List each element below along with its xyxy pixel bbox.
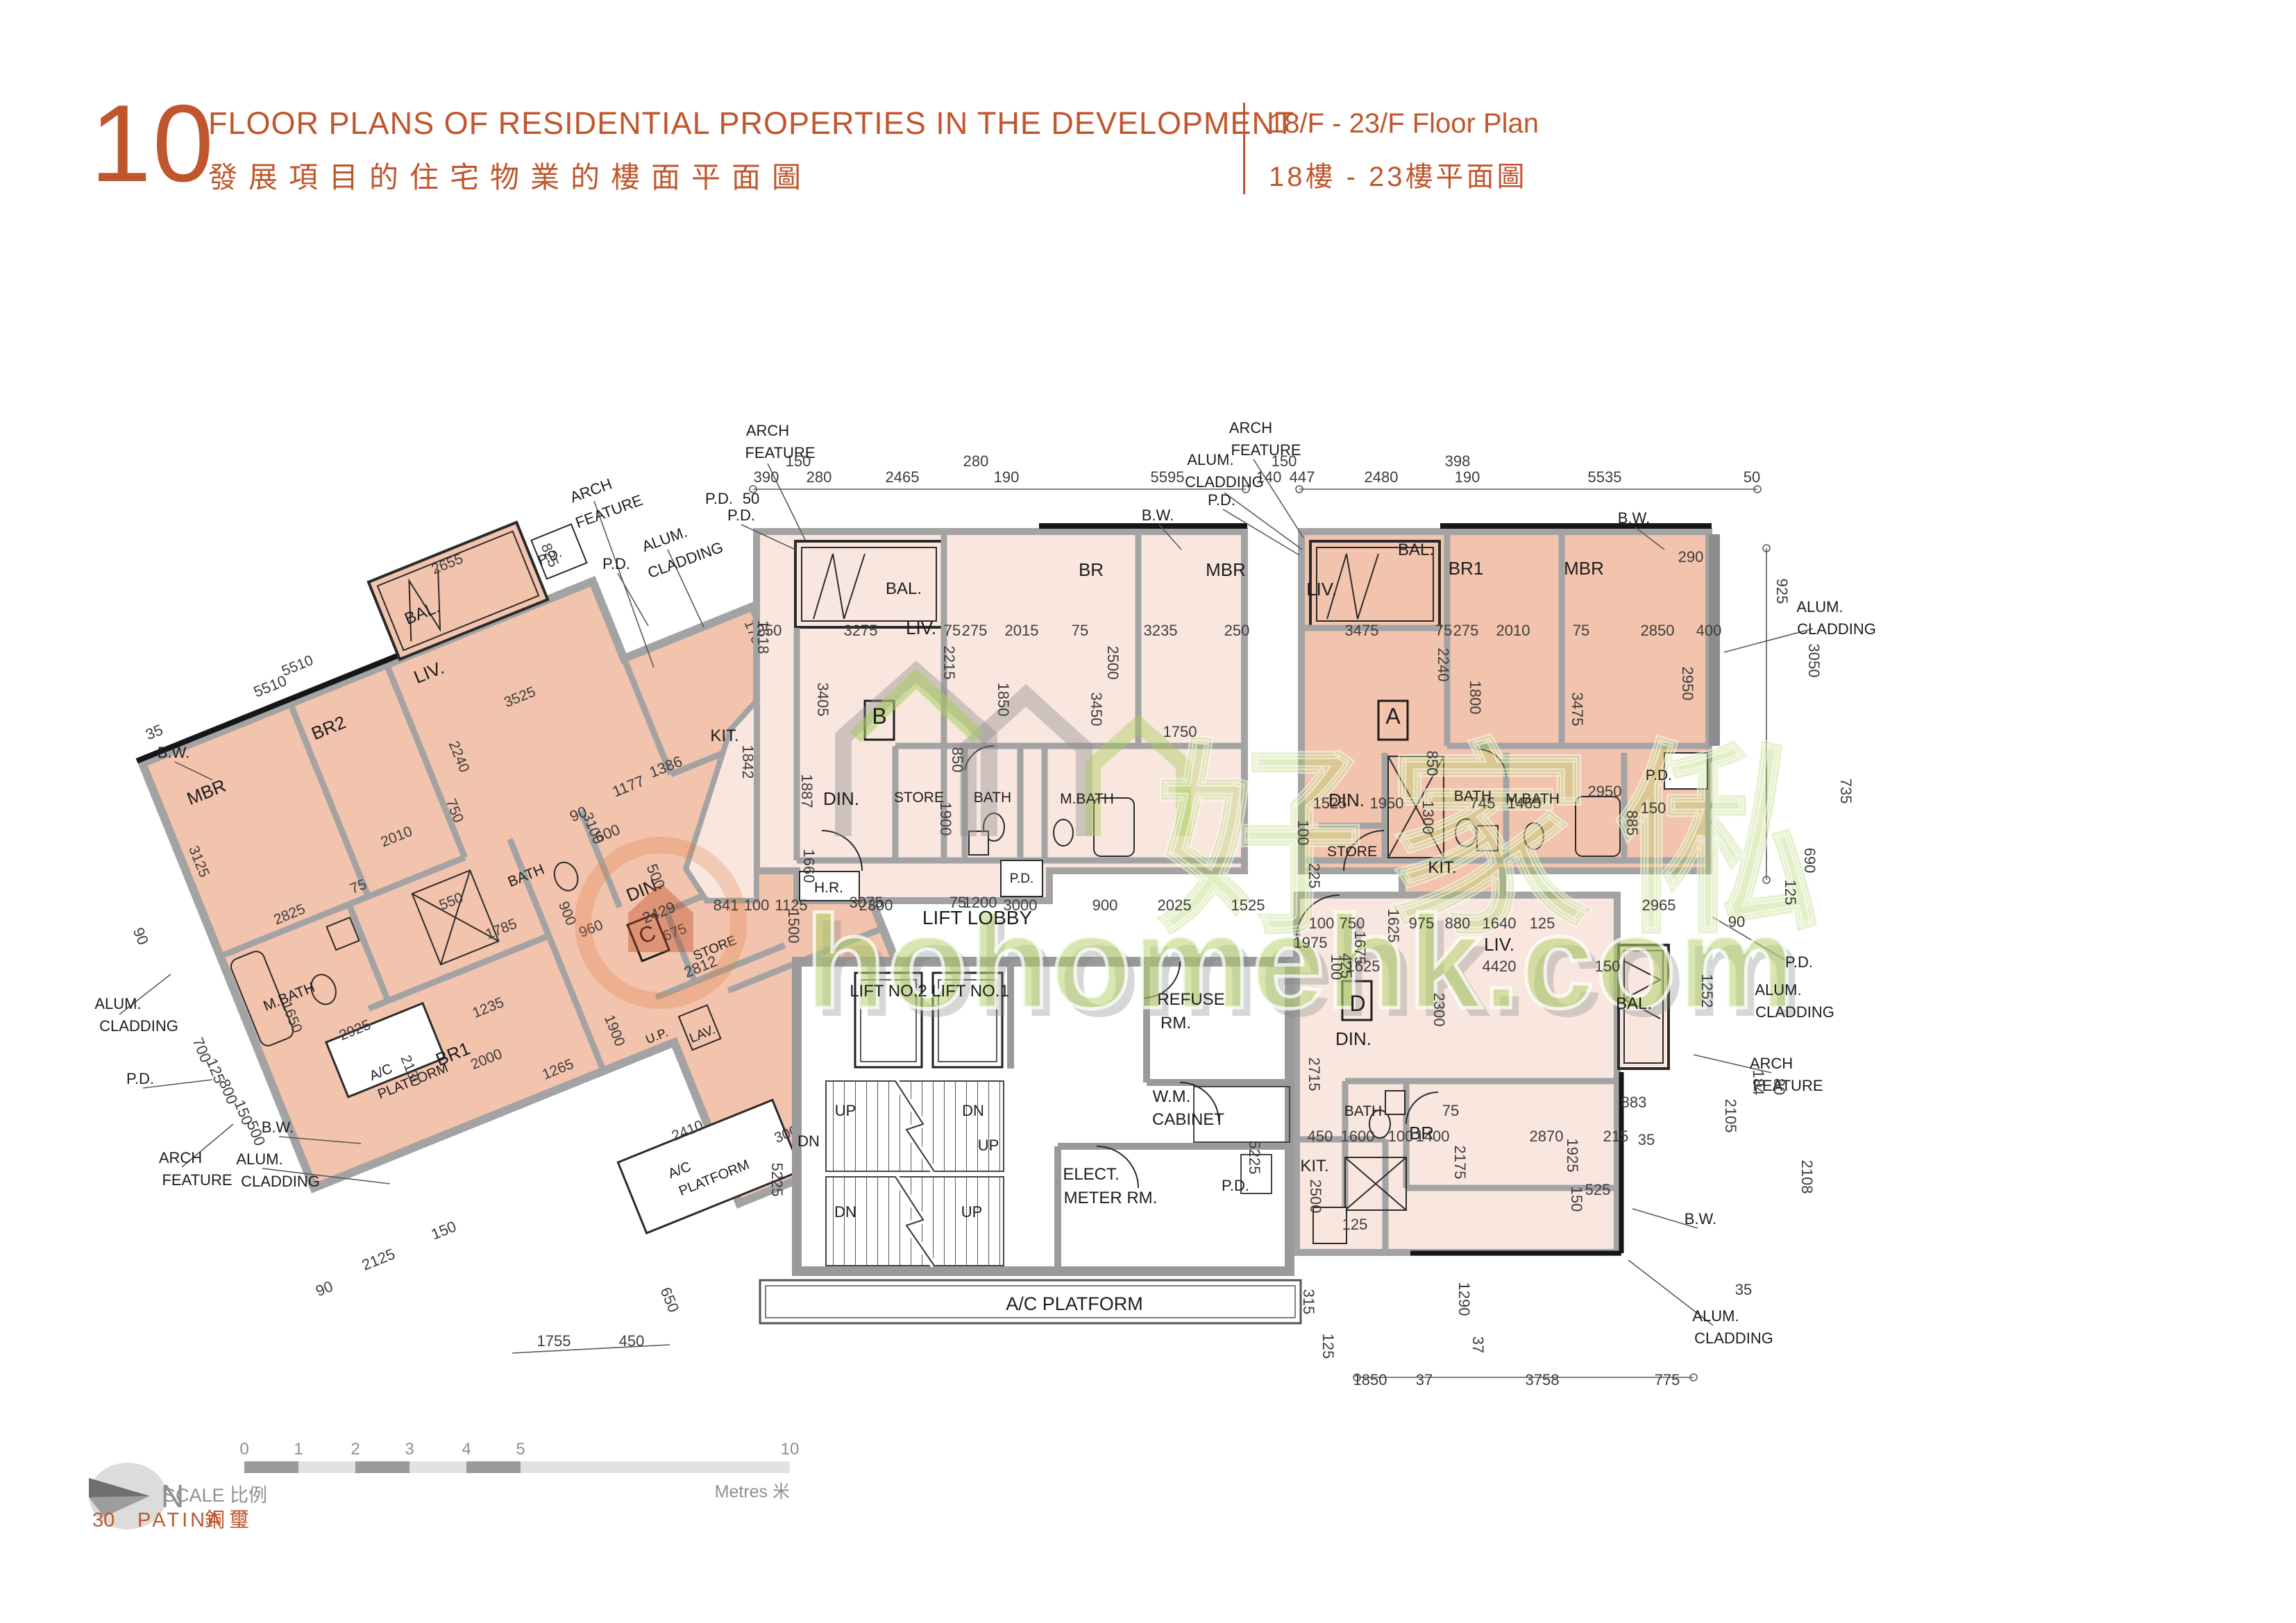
callout-label: B.W. xyxy=(1685,1210,1716,1227)
callout-label: B.W. xyxy=(1142,507,1174,524)
room-label: LIFT NO.1 xyxy=(931,982,1009,1001)
footer-block: N SCALE 比例 01234510 Metres 米 30 PATINA 銅… xyxy=(89,1440,799,1531)
room-label: KIT. xyxy=(1300,1157,1328,1175)
dimension-label: 5225 xyxy=(1246,1141,1263,1175)
dimension-label: 1925 xyxy=(1564,1139,1581,1173)
dimension-label: 2950 xyxy=(1679,667,1696,701)
callout-label: B.W. xyxy=(158,744,189,761)
scale-tick-label: 1 xyxy=(294,1440,303,1459)
dimension-label: 315 xyxy=(1300,1289,1317,1315)
dimension-label: 1200 xyxy=(963,894,997,911)
dimension-label: 3000 xyxy=(1004,897,1038,914)
callout-label: B.W. xyxy=(1618,509,1650,527)
scale-tick-label: 0 xyxy=(239,1440,248,1459)
dimension-label: 280 xyxy=(807,468,832,486)
dimension-label: 3275 xyxy=(844,622,878,639)
scale-tick-label: 5 xyxy=(516,1440,525,1459)
callout-label: P.D. xyxy=(1785,953,1813,971)
dimension-label: 883 xyxy=(1621,1094,1647,1111)
dimension-label: 50 xyxy=(1744,468,1760,486)
dimension-label: 2025 xyxy=(1158,897,1192,914)
dimension-label: 2965 xyxy=(1642,897,1676,914)
dimension-label: 37 xyxy=(1469,1336,1487,1353)
dimension-label: 250 xyxy=(1224,622,1250,639)
dimension-label: 2500 xyxy=(1307,1180,1324,1214)
dimension-label: 1850 xyxy=(995,683,1012,717)
dimension-label: 3050 xyxy=(1805,644,1823,678)
dimension-label: 900 xyxy=(1092,897,1118,914)
dimension-label: 125 xyxy=(1342,1216,1368,1233)
dimension-label: 5595 xyxy=(1151,468,1185,486)
dimension-label: 4420 xyxy=(1483,958,1517,975)
dimension-label: 1842 xyxy=(739,745,757,779)
callout-label: ALUM. xyxy=(640,523,690,555)
dimension-label: 275 xyxy=(962,622,988,639)
room-label: P.D. xyxy=(1010,872,1034,886)
dimension-label: 2240 xyxy=(1435,648,1452,682)
dimension-label: 1975 xyxy=(1294,934,1328,951)
callout-label: P.D. xyxy=(126,1070,154,1087)
dimension-label: 75 xyxy=(1435,622,1452,639)
room-label: MBR xyxy=(1206,559,1246,580)
dimension-label: 5535 xyxy=(1588,468,1622,486)
room-label: KIT. xyxy=(1428,858,1456,877)
dimension-label: 1950 xyxy=(1370,794,1404,812)
room-label: STORE xyxy=(894,790,944,806)
dimension-label: 690 xyxy=(1801,848,1818,874)
dimension-label: 150 xyxy=(1595,958,1621,975)
room-label: BR xyxy=(1079,559,1104,580)
alum-cladding-strip-a xyxy=(1709,534,1720,746)
room-label: UP xyxy=(978,1137,999,1154)
dimension-label: 150 xyxy=(1641,799,1666,817)
room-label: REFUSE xyxy=(1157,990,1224,1009)
callout-label: P.D. xyxy=(602,555,630,572)
room-label: A xyxy=(1385,704,1401,729)
room-label: H.R. xyxy=(814,880,843,896)
dimension-label: 125 xyxy=(1319,1334,1337,1359)
callout-label: B.W. xyxy=(262,1119,294,1136)
dimension-label: 1500 xyxy=(785,910,802,944)
room-label: BATH xyxy=(1344,1103,1382,1119)
callout-label: ARCH xyxy=(746,422,789,439)
dimension-label: 3475 xyxy=(1569,692,1586,726)
dimension-label: 75 xyxy=(1072,622,1088,639)
callout-label: CLADDING xyxy=(1755,1003,1834,1021)
dimension-label: 2480 xyxy=(1365,468,1399,486)
dimension-label: 125 xyxy=(1782,880,1799,906)
callout-label: ALUM. xyxy=(94,995,141,1012)
room-label: DIN. xyxy=(823,788,859,809)
dimension-label: 2010 xyxy=(1496,622,1530,639)
dimension-label: 37 xyxy=(1416,1371,1433,1388)
dimension-label: 275 xyxy=(1453,622,1479,639)
dimension-label: 885 xyxy=(1623,810,1641,836)
dimension-label: 100 xyxy=(1388,1128,1414,1145)
dimension-label: 35 xyxy=(1638,1131,1655,1148)
dimension-label: 2215 xyxy=(940,646,958,680)
dimension-label: 2125 xyxy=(360,1245,398,1274)
dimension-label: 290 xyxy=(1678,548,1704,566)
dimension-label: 390 xyxy=(754,468,779,486)
callout-label: ALUM. xyxy=(236,1150,282,1168)
dimension-label: 80 xyxy=(1771,1078,1788,1095)
dimension-label: 447 xyxy=(1290,468,1315,486)
dimension-label: 1300 xyxy=(1419,801,1437,835)
callout-label: CLADDING xyxy=(1694,1329,1773,1347)
dimension-label: 75 xyxy=(949,894,966,911)
footer-project-name-zh: 銅璽 xyxy=(205,1509,253,1531)
dimension-label: 1252 xyxy=(1698,974,1716,1008)
room-label: MBR xyxy=(1564,558,1604,579)
dimension-label: 850 xyxy=(949,747,966,773)
room-label: BAL. xyxy=(1398,541,1434,559)
dimension-label: 2715 xyxy=(1306,1057,1323,1091)
dimension-label: 125 xyxy=(1530,915,1555,932)
room-label: METER RM. xyxy=(1064,1189,1158,1207)
dimension-label: 925 xyxy=(1773,579,1791,604)
room-label: LIV. xyxy=(1484,934,1514,955)
metres-label: Metres 米 xyxy=(715,1482,790,1502)
room-label: BR1 xyxy=(1449,558,1484,579)
room-label: BATH xyxy=(974,790,1011,806)
dimension-label: 150 xyxy=(428,1218,458,1243)
dimension-label: 880 xyxy=(1445,915,1471,932)
callout-label: ARCH xyxy=(159,1149,202,1166)
callout-label: CLADDING xyxy=(1797,620,1876,638)
callout-label: P.D. xyxy=(727,507,755,524)
dimension-label: 450 xyxy=(619,1332,645,1350)
dimension-label: 1400 xyxy=(1416,1128,1450,1145)
dimension-label: 90 xyxy=(1728,913,1745,931)
scale-label: SCALE 比例 xyxy=(163,1485,267,1506)
dimension-label: 975 xyxy=(1409,915,1435,932)
dimension-label: 745 xyxy=(1470,794,1496,812)
dimension-label: 5225 xyxy=(768,1163,786,1197)
dimension-label: 190 xyxy=(994,468,1020,486)
dimension-label: 3405 xyxy=(814,683,832,717)
dimension-label: 841 xyxy=(714,897,739,914)
callout-label: ARCH xyxy=(568,475,614,507)
dimension-label: 1465 xyxy=(1508,794,1542,812)
dimension-label: 2850 xyxy=(1641,622,1675,639)
room-label: UP xyxy=(961,1203,983,1221)
room-label: DIN. xyxy=(1335,1028,1371,1049)
room-label: CABINET xyxy=(1152,1110,1224,1129)
dimension-label: 750 xyxy=(1340,915,1365,932)
room-label: ELECT. xyxy=(1063,1165,1119,1184)
dimension-label: 5510 xyxy=(251,672,289,701)
room-label: DN xyxy=(797,1132,820,1150)
scale-tick-label: 10 xyxy=(781,1440,800,1459)
dimension-label: 90 xyxy=(130,925,152,947)
dimension-label: 2465 xyxy=(886,468,920,486)
scale-tick-label: 2 xyxy=(351,1440,360,1459)
dimension-label: 35 xyxy=(1735,1281,1752,1298)
dimension-label: 1660 xyxy=(800,849,818,883)
dimension-label: 735 xyxy=(1837,779,1855,804)
dimension-label: 1900 xyxy=(937,802,954,836)
dimension-label: 100 xyxy=(744,897,770,914)
dimension-label-unit-c: 5510 xyxy=(280,652,316,679)
callout-label: ARCH xyxy=(1229,419,1272,436)
room-label: P.D. xyxy=(1222,1177,1249,1194)
brochure-page: { "theme": { "accent": "#c0562d", "salmo… xyxy=(0,0,2296,1623)
dimension-label: 400 xyxy=(1696,622,1722,639)
callout-label: ALUM. xyxy=(1755,981,1801,999)
dimension-label: 3475 xyxy=(1345,622,1379,639)
dimension-label: 1600 xyxy=(1341,1128,1375,1145)
dimension-label: 1887 xyxy=(798,774,816,808)
callout-label: CLADDING xyxy=(99,1017,178,1035)
dimension-label: 1640 xyxy=(1483,915,1517,932)
dimension-label: 425 xyxy=(1337,953,1355,979)
callout-label: CLADDING xyxy=(1185,473,1264,491)
room-label: P.D. xyxy=(1646,767,1672,783)
dimension-label: 280 xyxy=(963,452,989,470)
dimension-label: 1850 xyxy=(1353,1371,1387,1388)
dimension-label: 398 xyxy=(1445,452,1471,470)
dimension-label: 2300 xyxy=(859,897,893,914)
room-label: A/C PLATFORM xyxy=(1006,1293,1143,1314)
dimension-label: 525 xyxy=(1585,1181,1611,1198)
dimension-label: 225 xyxy=(1306,863,1323,889)
footer-page-number: 30 xyxy=(92,1509,115,1531)
dimension-label: 2870 xyxy=(1530,1128,1564,1145)
dimension-label: 100 xyxy=(1309,915,1335,932)
dimension-label: 150 xyxy=(1272,452,1297,470)
dimension-label: 3450 xyxy=(1088,692,1105,726)
dimension-label: 2175 xyxy=(1451,1146,1469,1180)
dimension-label: 150 xyxy=(786,452,811,470)
callout-label: FEATURE xyxy=(162,1171,232,1189)
dimension-label: 3235 xyxy=(1144,622,1178,639)
dimension-label: 2108 xyxy=(1798,1160,1816,1194)
dimension-label: 100 xyxy=(1294,820,1312,846)
room-label: B xyxy=(872,704,886,729)
dimension-label: 35 xyxy=(143,721,165,743)
room-label: STORE xyxy=(1327,844,1377,860)
dimension-label: 1800 xyxy=(1467,681,1484,715)
dimension-label: 1525 xyxy=(1231,897,1265,914)
dimension-label: 75 xyxy=(1573,622,1589,639)
dimension-label: 1525 xyxy=(1313,794,1347,812)
dimension-label: 2950 xyxy=(1588,783,1622,800)
room-label: UP xyxy=(835,1102,856,1119)
dimension-label: 1750 xyxy=(1163,723,1197,740)
dimension-label: 2015 xyxy=(1005,622,1039,639)
dimension-label: 184 xyxy=(1750,1070,1767,1096)
room-label: LIFT NO.2 xyxy=(850,982,927,1001)
dimension-label: 75 xyxy=(1442,1102,1459,1119)
callout-label: ALUM. xyxy=(1187,451,1233,468)
dimension-label: 2500 xyxy=(1104,646,1122,680)
room-label: RM. xyxy=(1160,1014,1191,1033)
room-label: BAL. xyxy=(1616,994,1652,1013)
room-label: DN xyxy=(834,1203,856,1221)
callout-label: 50 xyxy=(743,490,759,507)
room-label: LIV. xyxy=(906,618,936,638)
room-label: LIV. xyxy=(1306,579,1337,600)
callout-label: P.D. xyxy=(705,490,733,507)
callout-label: CLADDING xyxy=(241,1173,320,1190)
dimension-label: 215 xyxy=(1603,1128,1629,1145)
dimension-label: 1755 xyxy=(537,1332,571,1350)
dimension-label: 775 xyxy=(1655,1371,1680,1388)
room-label: KIT. xyxy=(710,726,738,745)
room-label: M.BATH xyxy=(1060,791,1114,807)
callout-label: P.D. xyxy=(1208,491,1235,509)
scale-tick-label: 4 xyxy=(462,1440,471,1459)
callout-label: ALUM. xyxy=(1796,598,1843,615)
scale-tick-label: 3 xyxy=(405,1440,414,1459)
dimension-label: 190 xyxy=(1455,468,1480,486)
dimension-label: 1518 xyxy=(754,620,772,654)
dimension-label: 75 xyxy=(944,622,961,639)
callout-label: ALUM. xyxy=(1692,1307,1739,1325)
room-label: DN xyxy=(962,1102,984,1119)
dimension-label: 450 xyxy=(1308,1128,1333,1145)
dimension-label: 3758 xyxy=(1526,1371,1560,1388)
dimension-label: 850 xyxy=(1424,751,1441,776)
dimension-label: 1290 xyxy=(1455,1282,1473,1316)
dimension-label: 140 xyxy=(1256,468,1282,486)
dimension-label: 90 xyxy=(313,1277,335,1300)
dimension-label: 2105 xyxy=(1722,1099,1739,1133)
room-label: BAL. xyxy=(886,579,922,598)
room-label: D xyxy=(1349,991,1365,1016)
dimension-label: 1625 xyxy=(1385,909,1402,943)
scale-bar xyxy=(244,1461,790,1473)
dimension-label: 650 xyxy=(657,1284,682,1314)
dimension-label: 2300 xyxy=(1430,993,1448,1027)
dimension-label: 150 xyxy=(1568,1187,1585,1212)
floor-plan-drawing: MBRBR2BAL.LIV.P.D.M.BATHBATHDIN.CBR1STOR… xyxy=(0,0,2296,1623)
room-label: W.M. xyxy=(1153,1087,1191,1106)
